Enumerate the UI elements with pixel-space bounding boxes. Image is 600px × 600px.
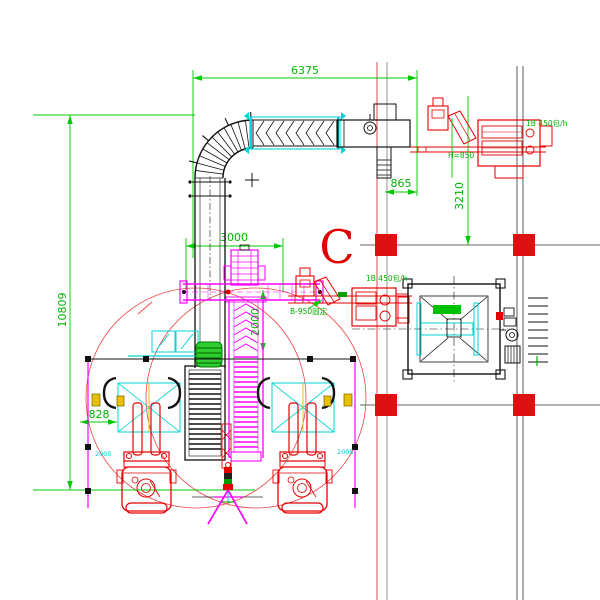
building-grid	[360, 62, 600, 600]
vertical-conveyor	[188, 176, 231, 368]
rate-note-top: 1B 450包/h	[526, 118, 568, 128]
dim-top-width: 6375	[291, 64, 319, 77]
fixture	[92, 394, 100, 406]
green-tag	[338, 292, 347, 297]
pallet-code-right: 2005	[337, 448, 354, 456]
junction-mark	[226, 290, 231, 295]
fixture	[117, 396, 124, 406]
hopper-green-label	[433, 305, 461, 314]
dimension-3000: 3000	[186, 231, 283, 292]
cad-canvas: 6375 10809 3000 2000 865 3210 828	[0, 0, 600, 600]
plan-drawing: 6375 10809 3000 2000 865 3210 828	[0, 0, 600, 600]
dim-drop-span: 2000	[249, 308, 262, 336]
dimension-3210: 3210	[453, 96, 468, 245]
note-h850: H=850	[448, 118, 474, 178]
dim-conveyor-span: 3000	[220, 231, 248, 244]
height-note-text: H=850	[448, 151, 474, 160]
note-b950: B-950固定	[290, 300, 328, 316]
dimension-828: 828	[80, 408, 117, 422]
section-letter: C	[319, 220, 354, 274]
dim-bay-span: 3210	[453, 182, 466, 210]
control-boxes	[128, 331, 198, 356]
column	[513, 394, 535, 416]
dim-machine-offset: 865	[391, 177, 412, 190]
magenta-cross-conveyor	[180, 281, 323, 303]
column	[375, 394, 397, 416]
port-circle	[364, 122, 376, 134]
pallet-guide-bracket	[104, 378, 116, 408]
top-belt-conveyor	[244, 112, 346, 154]
fixture	[324, 396, 331, 406]
forklift-left	[117, 403, 176, 513]
fixture	[344, 394, 352, 406]
column	[513, 234, 535, 256]
rate-note-mid: 1B 450包/h	[366, 273, 408, 283]
structural-columns	[375, 234, 535, 416]
discharge-chute	[377, 147, 391, 178]
operator-figure	[192, 463, 263, 525]
cyan-arrow-markers	[244, 112, 346, 154]
green-roller-unit	[196, 342, 222, 367]
bagging-line-top	[410, 98, 552, 178]
filler-machine	[337, 104, 410, 178]
pallet-guide-bracket	[258, 378, 270, 408]
magenta-riser-unit	[224, 245, 265, 285]
black-roller-conveyor	[185, 366, 231, 468]
fixed-note-text: B-950固定	[290, 306, 328, 316]
access-ladder	[528, 298, 548, 366]
dimension-6375: 6375	[193, 64, 417, 258]
dim-pallet-offset: 828	[89, 408, 110, 421]
belt-chevrons	[256, 121, 334, 145]
pallet-code-left: 2005	[95, 450, 112, 458]
column	[375, 234, 397, 256]
dim-left-height: 10809	[56, 293, 69, 328]
dimension-865: 865	[385, 177, 417, 192]
